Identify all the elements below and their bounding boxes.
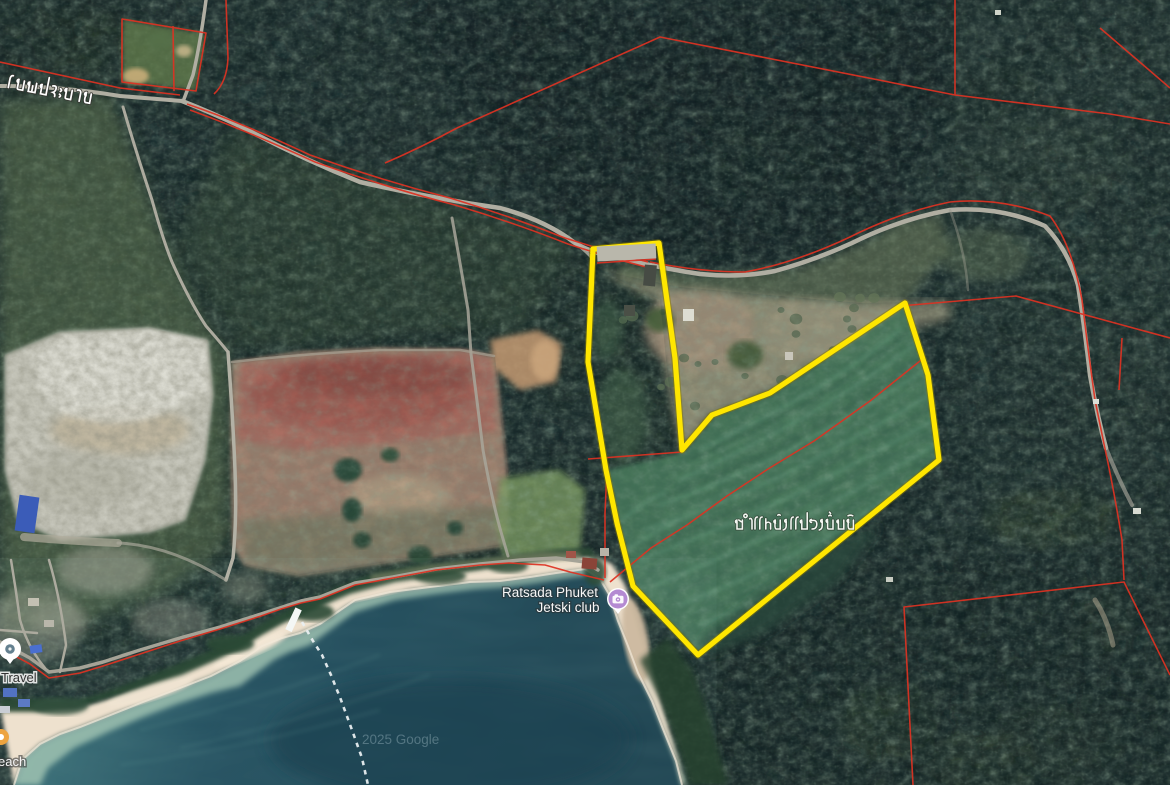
svg-text:each: each bbox=[0, 754, 26, 769]
svg-text:Ratsada Phuket: Ratsada Phuket bbox=[502, 585, 598, 600]
svg-text:Travel: Travel bbox=[1, 670, 37, 685]
svg-text:2025 Google: 2025 Google bbox=[362, 732, 439, 747]
svg-text:Jetski club: Jetski club bbox=[536, 600, 599, 615]
